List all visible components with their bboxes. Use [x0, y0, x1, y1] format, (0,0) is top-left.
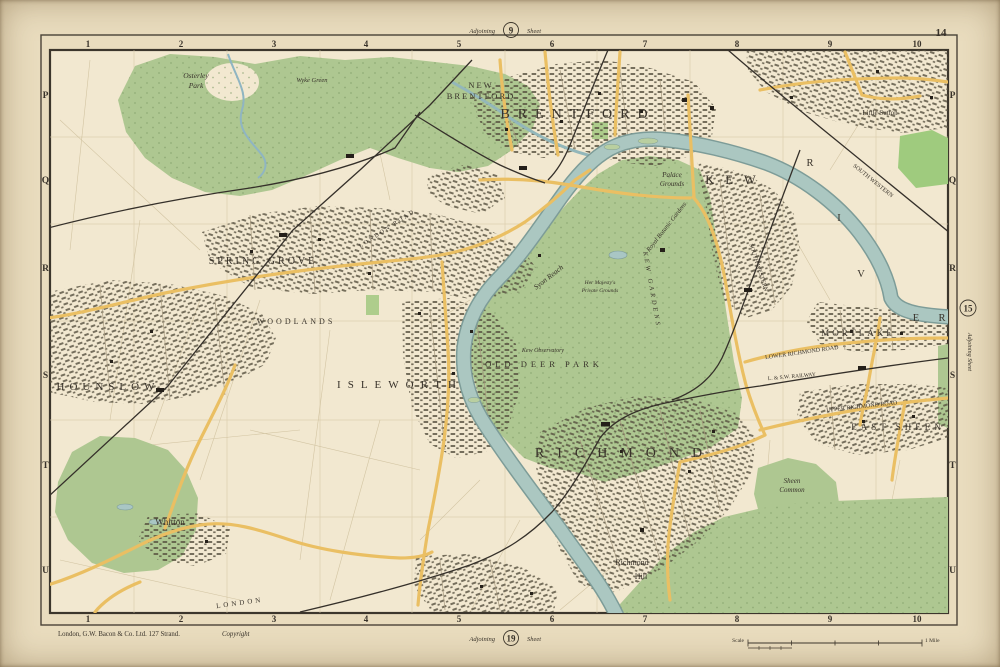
col-top-8: 8 [735, 39, 740, 49]
label-woodlands: WOODLANDS [257, 317, 336, 326]
lots-eyot [638, 138, 658, 144]
col-bot-2: 2 [179, 614, 184, 624]
label-new-brentford-line1: NEW [468, 80, 493, 90]
adjoining-top-number: 9 [509, 26, 514, 36]
label-kew: KEW [705, 173, 766, 187]
isleworth-ait [468, 397, 480, 402]
label-whitton: Whitton [155, 517, 185, 527]
imprint: London, G.W. Bacon & Co. Ltd. 127 Strand… [58, 631, 251, 638]
label-spring-grove: SPRING GROVE [209, 256, 318, 267]
scale-bar-right-label: 1 Mile [925, 638, 940, 644]
row-left-r: R [42, 264, 49, 274]
row-right-r: R [949, 264, 956, 274]
scale-bar-left-label: Scale [732, 638, 744, 644]
station-mortlake [858, 366, 866, 370]
row-left-s: S [43, 371, 48, 381]
label-private-grounds: Private Grounds [581, 288, 619, 294]
imprint-publisher: London, G.W. Bacon & Co. Ltd. 127 Strand… [58, 631, 180, 638]
col-top-2: 2 [179, 39, 184, 49]
row-left-p: P [43, 91, 49, 101]
brentford-eyot [604, 144, 620, 150]
label-common: Common [779, 486, 805, 494]
col-top-4: 4 [364, 39, 369, 49]
col-bot-6: 6 [550, 614, 555, 624]
label-richmond-hill-2: Hill [635, 572, 648, 581]
station-osterley [346, 154, 354, 158]
adjoining-bottom-number: 19 [507, 634, 517, 644]
row-left-u: U [42, 566, 49, 576]
row-left-q: Q [42, 176, 49, 186]
col-bot-5: 5 [457, 614, 462, 624]
label-brentford: BRENTFORD [500, 107, 655, 122]
station-richmond [601, 422, 610, 427]
label-hounslow: HOUNSLOW [57, 381, 160, 393]
station-isleworth [279, 233, 287, 237]
row-right-s: S [950, 371, 955, 381]
row-right-q: Q [949, 176, 956, 186]
col-top-3: 3 [272, 39, 277, 49]
col-bot-9: 9 [828, 614, 833, 624]
col-top-6: 6 [550, 39, 555, 49]
label-new-brentford-line2: BRENTFORD [447, 91, 516, 101]
imprint-copyright: Copyright [222, 631, 251, 638]
label-her-majestys: Her Majesty's [584, 280, 616, 286]
label-east-sheen: EAST SHEEN [851, 422, 945, 432]
label-mortlake: MORTLAKE [821, 328, 894, 338]
label-river-r1: R [806, 158, 813, 169]
label-richmond-hill-1: Richmond [615, 558, 648, 567]
col-bot-8: 8 [735, 614, 740, 624]
station-brentford [519, 166, 527, 170]
label-kew-observatory: Kew Observatory [521, 348, 564, 354]
label-river-v: V [857, 269, 865, 280]
sheet-corner-number: 14 [936, 27, 948, 39]
col-top-7: 7 [643, 39, 648, 49]
map-canvas: NEW BRENTFORD BRENTFORD KEW R I V E R Pa… [0, 0, 1000, 667]
label-palace: Palace [661, 171, 681, 179]
col-bot-4: 4 [364, 614, 369, 624]
label-little-sutton: Little Sutton [862, 109, 898, 117]
kew-lake [609, 251, 627, 259]
adjoining-right-number: 15 [964, 304, 974, 314]
label-wyke-green: Wyke Green [296, 77, 327, 84]
map-sheet-page: NEW BRENTFORD BRENTFORD KEW R I V E R Pa… [0, 0, 1000, 667]
adjoining-right-label: Adjoining Sheet [966, 332, 972, 371]
col-top-9: 9 [828, 39, 833, 49]
whitton-pond-1 [117, 504, 133, 510]
adjoining-top-prefix: Adjoining [468, 28, 495, 35]
adjoining-bottom-suffix: Sheet [527, 636, 541, 643]
adjoining-bottom-prefix: Adjoining [468, 636, 495, 643]
col-top-10: 10 [913, 39, 923, 49]
col-top-5: 5 [457, 39, 462, 49]
label-river-i: I [837, 213, 841, 224]
col-top-1: 1 [86, 39, 91, 49]
label-sheen: Sheen [784, 477, 801, 485]
adjoining-top-suffix: Sheet [527, 28, 541, 35]
spring-grove-green-patch [366, 295, 379, 315]
label-richmond: RICHMOND [535, 446, 715, 461]
label-osterley: Osterley [183, 71, 209, 80]
label-park: Park [188, 81, 204, 90]
label-river-e: E [913, 313, 919, 324]
row-left-t: T [42, 461, 49, 471]
row-right-u: U [949, 566, 956, 576]
row-right-p: P [950, 91, 956, 101]
label-river-r2: R [938, 313, 945, 324]
urban-east-sheen [797, 384, 948, 455]
col-bot-7: 7 [643, 614, 648, 624]
col-bot-3: 3 [272, 614, 277, 624]
label-isleworth: ISLEWORTH [337, 379, 463, 391]
station-kew-gardens [744, 288, 752, 292]
row-right-t: T [949, 461, 956, 471]
col-bot-10: 10 [913, 614, 923, 624]
label-old-deer-park: OLD DEER PARK [485, 359, 603, 369]
label-grounds: Grounds [660, 180, 685, 188]
col-bot-1: 1 [86, 614, 91, 624]
